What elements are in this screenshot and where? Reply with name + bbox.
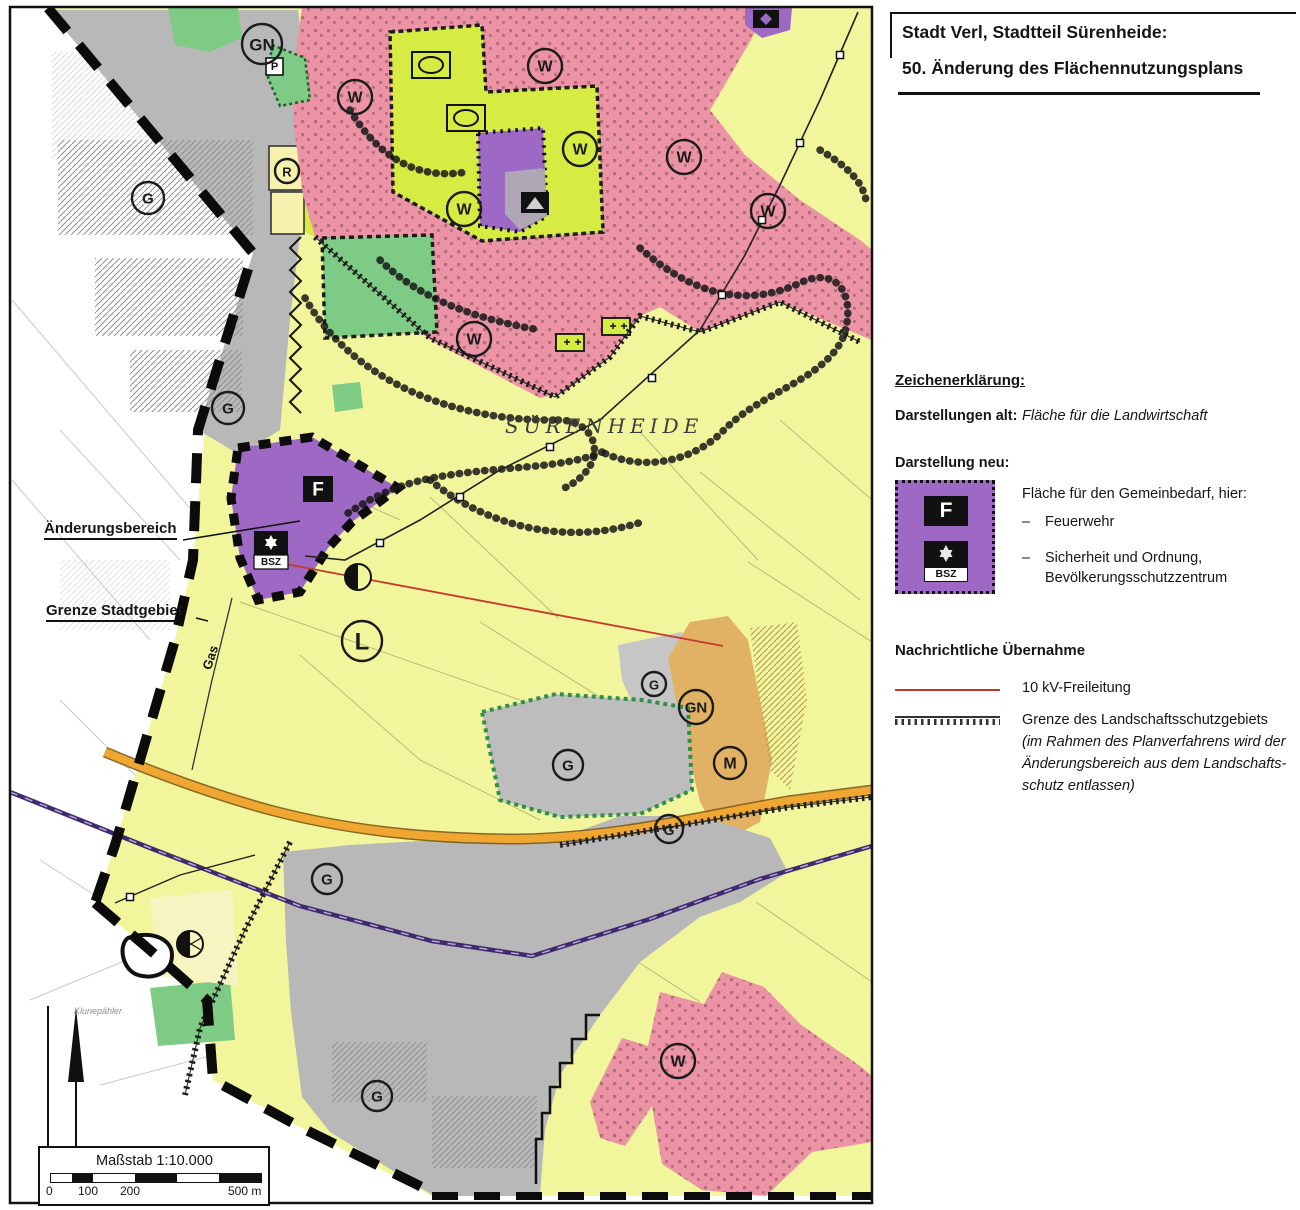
- legend-heading: Zeichenerklärung:: [895, 372, 1025, 389]
- pond: [123, 935, 172, 977]
- svg-text:GN: GN: [685, 700, 708, 717]
- svg-text:W: W: [676, 150, 692, 167]
- svg-text:F: F: [312, 480, 324, 501]
- svg-text:BSZ: BSZ: [261, 557, 281, 568]
- bsz-symbol: BSZ: [254, 531, 288, 569]
- svg-text:W: W: [456, 202, 472, 219]
- zone-green-5: [332, 382, 363, 412]
- svg-text:W: W: [760, 204, 776, 221]
- legend-old-value: Fläche für die Landwirtschaft: [1022, 408, 1207, 424]
- zone-green-3: [322, 235, 437, 338]
- legend-gemeinbedarf-title: Fläche für den Gemeinbedarf, hier:: [1022, 486, 1247, 502]
- legend-left-rule: [890, 12, 892, 58]
- svg-text:G: G: [321, 872, 333, 889]
- legend-lsg-note2: Änderungsbereich aus dem Landschafts-: [1022, 756, 1286, 772]
- legend-lsg-note3: schutz entlassen): [1022, 778, 1135, 794]
- svg-text:W: W: [466, 332, 482, 349]
- scale-label: Maßstab 1:10.000: [96, 1153, 268, 1169]
- svg-text:W: W: [537, 59, 553, 76]
- scale-bar: [50, 1173, 262, 1183]
- svg-text:G: G: [222, 401, 234, 418]
- legend-item-sicherheit: – Sicherheit und Ordnung,: [1022, 550, 1202, 566]
- feuerwehr-icon: F: [924, 496, 968, 526]
- star-icon: [924, 541, 968, 567]
- scale-tick: 200: [120, 1184, 140, 1198]
- svg-text:G: G: [562, 758, 574, 775]
- scale-tick-labels: 0 100 200 500 m: [40, 1183, 268, 1197]
- legend-item-text: Sicherheit und Ordnung,: [1045, 550, 1202, 566]
- title-underline: [898, 92, 1260, 95]
- transformer-icon-2: [177, 931, 203, 957]
- svg-text:G: G: [142, 191, 154, 208]
- scale-tick: 500 m: [228, 1184, 261, 1198]
- place-label: SÜRENHEIDE: [505, 414, 703, 438]
- scale-tick: 100: [78, 1184, 98, 1198]
- diamond-symbol-icon: [753, 10, 779, 28]
- scale-tick: 0: [46, 1184, 53, 1198]
- page-title-line2: 50. Änderung des Flächennutzungsplans: [902, 58, 1243, 79]
- bsz-label: BSZ: [924, 567, 968, 582]
- map-canvas: F BSZ P GNGGWWWWWWWRLGGNMGGGGW: [0, 0, 1300, 1210]
- transformer-icon-1: [345, 564, 371, 590]
- page: { "title": { "line1": "Stadt Verl, Stadt…: [0, 0, 1300, 1210]
- svg-text:GN: GN: [249, 36, 275, 55]
- legend-old-label: Darstellungen alt:: [895, 408, 1017, 424]
- legend-new-label: Darstellung neu:: [895, 455, 1009, 471]
- legend-lsg-label: Grenze des Landschaftsschutzgebiets: [1022, 712, 1268, 728]
- legend-nachrichtlich-heading: Nachrichtliche Übernahme: [895, 642, 1085, 659]
- legend-lsg-note1: (im Rahmen des Planverfahrens wird der: [1022, 734, 1286, 750]
- zone-gray-greenborder: [482, 694, 692, 817]
- legend-top-rule: [890, 12, 1296, 14]
- zone-r-box2: [271, 192, 304, 234]
- legend-item-feuerwehr: – Feuerwehr: [1022, 514, 1114, 530]
- dash: –: [1022, 514, 1045, 530]
- playground-icon-1: [556, 334, 584, 351]
- playground-icon-2: [602, 318, 630, 335]
- svg-text:G: G: [649, 678, 659, 693]
- page-title-line1: Stadt Verl, Stadtteil Sürenheide:: [902, 22, 1167, 43]
- school-triangle-icon: [521, 192, 549, 213]
- svg-text:P: P: [271, 61, 278, 73]
- annotation-aenderungsbereich: Änderungsbereich: [44, 520, 177, 540]
- annotation-grenze-stadtgebiet: Grenze Stadtgebiet: [46, 602, 183, 622]
- svg-text:G: G: [664, 822, 675, 838]
- feuerwehr-symbol: F: [303, 476, 333, 502]
- svg-text:G: G: [371, 1089, 383, 1106]
- zone-green-4: [150, 980, 235, 1046]
- legend-power-line-label: 10 kV-Freileitung: [1022, 680, 1131, 696]
- legend-item-text: Feuerwehr: [1045, 514, 1114, 530]
- svg-text:M: M: [723, 756, 736, 773]
- svg-text:L: L: [355, 629, 370, 656]
- svg-text:W: W: [347, 90, 363, 107]
- legend-gemeinbedarf-swatch: F BSZ: [895, 480, 995, 594]
- lsg-boundary-symbol: [895, 714, 1000, 733]
- dash: –: [1022, 550, 1045, 566]
- legend-item-sicherheit-line2: Bevölkerungsschutzzentrum: [1045, 570, 1227, 586]
- power-line-symbol: [895, 689, 1000, 691]
- street-label: Klunepähler: [74, 1006, 122, 1016]
- svg-text:R: R: [282, 165, 292, 180]
- svg-text:W: W: [670, 1054, 686, 1071]
- svg-text:W: W: [572, 142, 588, 159]
- scale-box: Maßstab 1:10.000 0 100 200 500 m: [38, 1146, 270, 1206]
